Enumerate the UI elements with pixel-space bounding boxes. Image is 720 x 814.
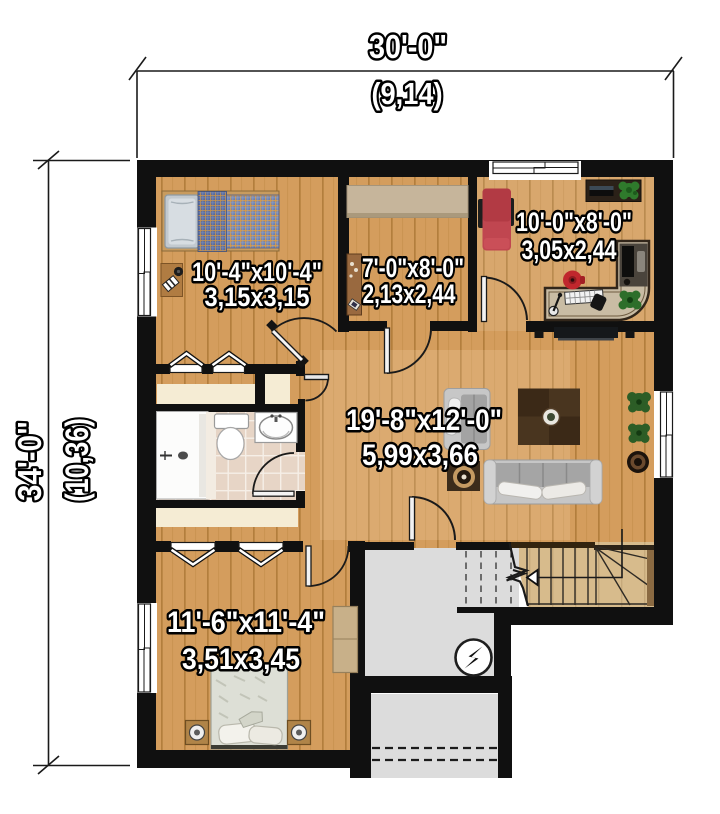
svg-text:34'-0": 34'-0" bbox=[11, 421, 48, 501]
svg-text:(10,36): (10,36) bbox=[59, 418, 95, 502]
svg-text:3,51x3,45: 3,51x3,45 bbox=[182, 643, 300, 676]
svg-text:(9,14): (9,14) bbox=[372, 76, 443, 111]
svg-text:3,15x3,15: 3,15x3,15 bbox=[205, 282, 310, 312]
svg-text:30'-0": 30'-0" bbox=[369, 28, 447, 65]
svg-text:19'-8"x12'-0": 19'-8"x12'-0" bbox=[346, 404, 502, 437]
svg-text:5,99x3,66: 5,99x3,66 bbox=[362, 439, 478, 472]
svg-text:2,13x2,44: 2,13x2,44 bbox=[363, 279, 456, 309]
svg-text:11'-6"x11'-4": 11'-6"x11'-4" bbox=[167, 606, 325, 639]
svg-text:10'-0"x8'-0": 10'-0"x8'-0" bbox=[516, 207, 632, 237]
svg-text:3,05x2,44: 3,05x2,44 bbox=[522, 235, 617, 265]
